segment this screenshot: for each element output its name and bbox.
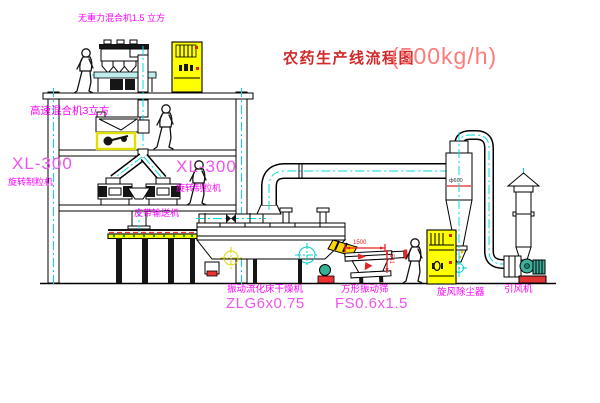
exhaust-duct [257,164,452,214]
cad-flow-diagram: 无重力混合机1.5 立方 高速混合机3立方 XL-300 旋转制粒机 XL-30… [0,0,600,403]
granulator-left [98,178,132,205]
granulator-left-name: 旋转制粒机 [8,178,53,187]
belt-conveyor-label: 皮带输送机 [134,209,179,218]
high-speed-mixer-label: 高速混合机3立方 [30,106,109,117]
cyclone-diameter-note: ф600 [449,178,463,184]
gravity-mixer-label: 无重力混合机1.5 立方 [78,14,165,23]
sieve-height-dimension: 541 [388,254,394,264]
control-cabinet-right [427,230,456,284]
exhaust-stack [508,168,539,262]
granulator-right-model: XL-300 [176,158,237,175]
sieve-length-dimension: 1500 [353,240,366,246]
fan-label: 引风机 [504,285,533,295]
page-title-capacity: (500kg/h) [391,45,497,68]
fluid-bed-dryer [196,208,357,283]
vibrating-sieve [345,249,409,284]
induced-draft-fan [504,256,546,283]
dryer-name-label: 振动流化床干燥机 [227,285,303,295]
gravity-free-mixer [92,40,160,96]
cyclone-label: 旋风除尘器 [437,288,485,298]
granulator-right-name: 旋转制粒机 [176,184,221,193]
granulator-right [146,178,180,205]
dryer-model-label: ZLG6x0.75 [226,296,305,311]
sieve-name-label: 方形振动筛 [341,285,389,295]
granulator-left-model: XL-300 [12,155,73,172]
belt-conveyor [108,229,198,283]
control-cabinet-top [172,42,202,92]
sieve-model-label: FS0.6x1.5 [335,296,408,311]
